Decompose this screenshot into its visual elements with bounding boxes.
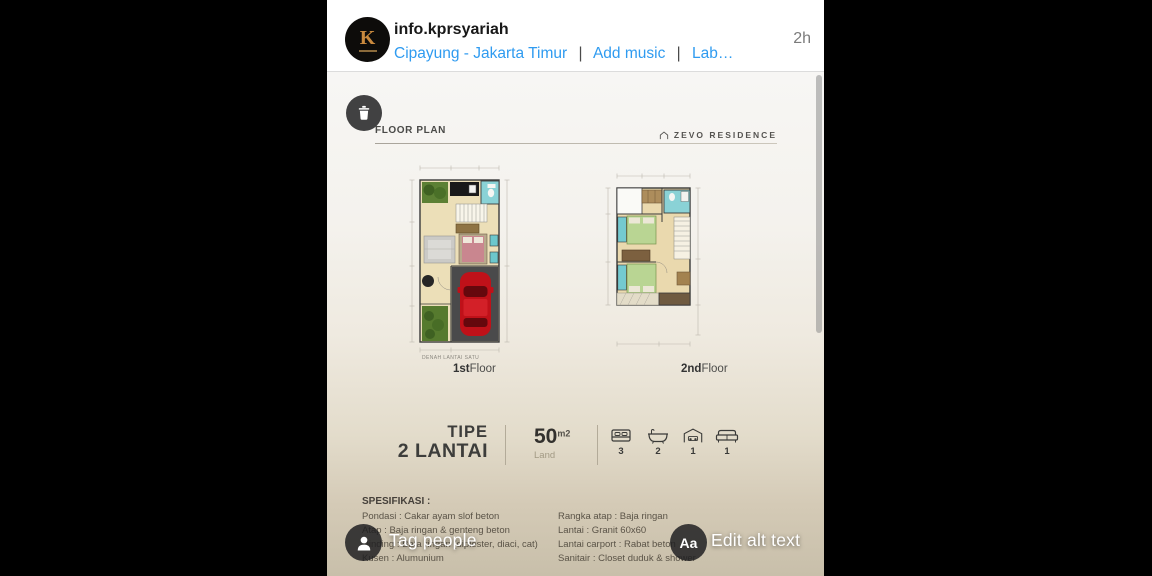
divider (505, 425, 506, 465)
tag-people-button[interactable] (345, 524, 382, 561)
link-separator: | (677, 45, 681, 62)
floor1-caption: DENAH LANTAI SATU (422, 355, 479, 361)
bathtub-icon (646, 427, 670, 444)
link-separator: | (578, 45, 582, 62)
scrollbar-thumb[interactable] (816, 75, 822, 333)
post-editor-panel: K info.kprsyariah Cipayung - Jakarta Tim… (327, 0, 824, 576)
sofa-icon (714, 427, 740, 444)
spec-line: Kusen : Alumunium (362, 552, 538, 566)
land-area: 50m2 Land (534, 425, 570, 461)
livingroom-count: 1 (712, 446, 742, 457)
edit-alt-text-label[interactable]: Edit alt text (711, 530, 800, 551)
edit-alt-text-button[interactable]: Aa (670, 524, 707, 561)
brand-name: ZEVO RESIDENCE (674, 130, 777, 140)
trash-icon (355, 104, 373, 122)
specs-heading: SPESIFIKASI : (362, 496, 430, 507)
brand-lockup: ZEVO RESIDENCE (577, 130, 777, 140)
floor1-label: 1stFloor (453, 363, 496, 375)
avatar[interactable]: K (345, 17, 390, 62)
bathroom-count: 2 (643, 446, 673, 457)
floor-plan-2-drawing (600, 160, 710, 370)
amenity-livingroom: 1 (712, 427, 742, 457)
avatar-logo-underline (359, 50, 377, 52)
bed-icon (609, 427, 633, 444)
spec-line: Rangka atap : Baja ringan (558, 510, 696, 524)
timestamp: 2h (793, 30, 811, 48)
carport-count: 1 (678, 446, 708, 457)
tag-people-label[interactable]: Tag people (389, 530, 477, 551)
house-type: TIPE 2 LANTAI (387, 424, 488, 462)
heading-rule (375, 143, 777, 144)
divider (597, 425, 598, 465)
garage-icon (682, 427, 704, 444)
amenity-bedrooms: 3 (606, 427, 636, 457)
header-links: Cipayung - Jakarta Timur | Add music | L… (394, 45, 733, 63)
avatar-logo: K (360, 28, 376, 48)
location-link[interactable]: Cipayung - Jakarta Timur (394, 45, 567, 62)
post-header: K info.kprsyariah Cipayung - Jakarta Tim… (327, 0, 824, 72)
amenity-carport: 1 (678, 427, 708, 457)
aa-icon: Aa (680, 535, 698, 551)
add-music-link[interactable]: Add music (593, 45, 665, 62)
floor-plan-1-drawing (407, 160, 535, 370)
person-icon (354, 533, 374, 553)
label-link[interactable]: Lab… (692, 45, 733, 62)
floor2-label: 2ndFloor (681, 363, 728, 375)
house-icon (659, 131, 669, 140)
post-image: FLOOR PLAN ZEVO RESIDENCE (327, 72, 824, 576)
amenity-bathrooms: 2 (643, 427, 673, 457)
poster-section-title: FLOOR PLAN (375, 125, 446, 136)
spec-line: Pondasi : Cakar ayam slof beton (362, 510, 538, 524)
letterbox-stage: K info.kprsyariah Cipayung - Jakarta Tim… (0, 0, 1152, 576)
username[interactable]: info.kprsyariah (394, 21, 509, 39)
bedroom-count: 3 (606, 446, 636, 457)
